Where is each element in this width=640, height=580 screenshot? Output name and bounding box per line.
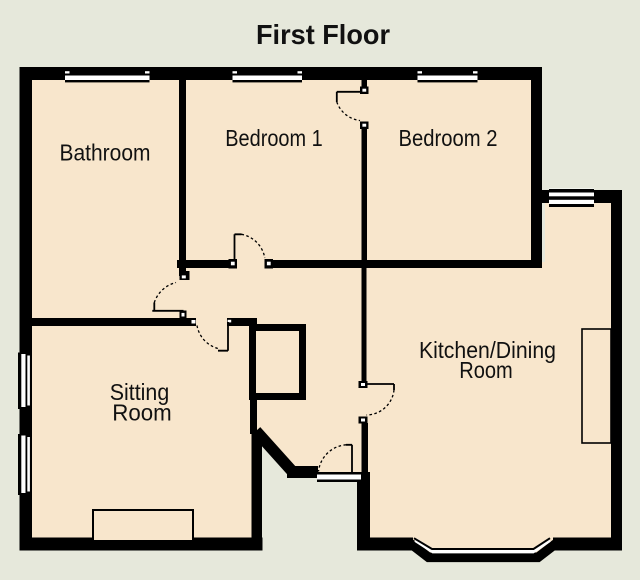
svg-text:Room: Room [459, 357, 513, 383]
svg-text:First Floor: First Floor [256, 19, 390, 50]
svg-text:Bathroom: Bathroom [60, 140, 151, 166]
svg-text:Room: Room [112, 400, 172, 426]
svg-text:Bedroom 1: Bedroom 1 [225, 125, 323, 151]
svg-text:Bedroom 2: Bedroom 2 [399, 125, 498, 151]
